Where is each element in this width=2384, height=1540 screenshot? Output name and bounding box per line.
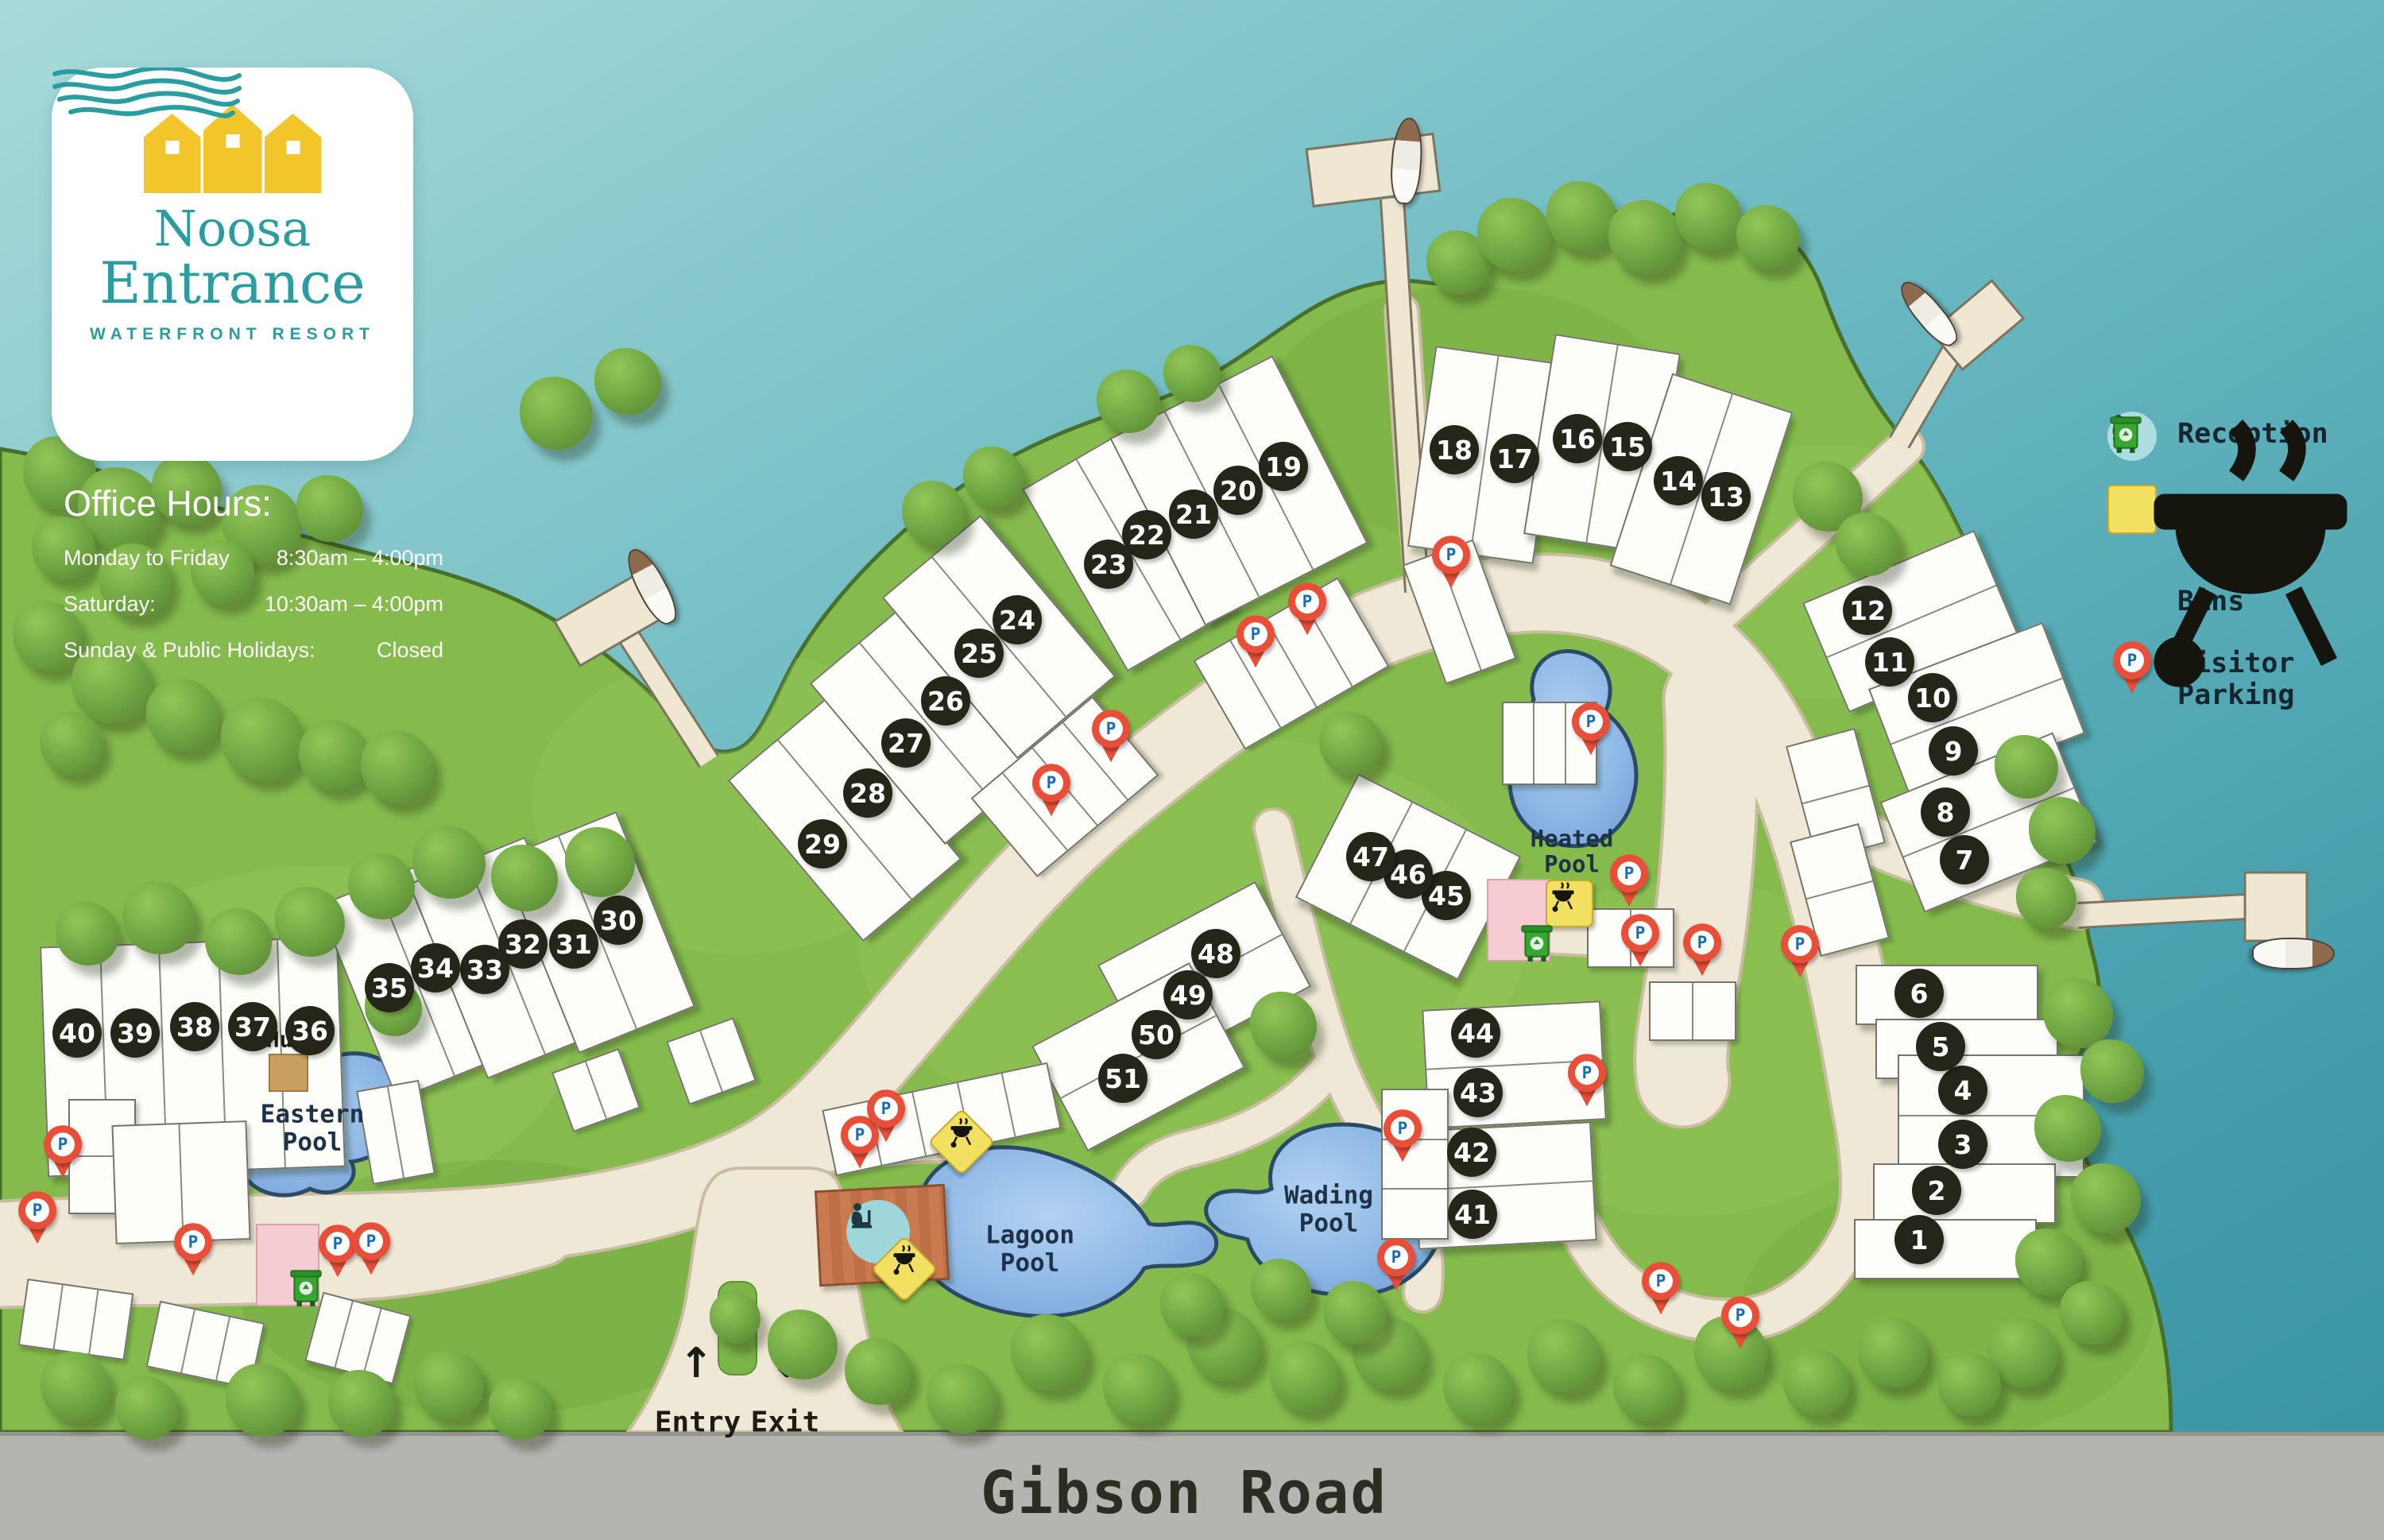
tree-icon bbox=[275, 887, 345, 957]
tree-icon bbox=[41, 1352, 110, 1422]
lot-bay bbox=[1856, 1221, 2035, 1278]
pool-label: Lagoon Pool bbox=[985, 1221, 1074, 1276]
site-badge-21: 21 bbox=[1169, 489, 1218, 539]
visitor-parking-pin: P bbox=[1683, 923, 1721, 979]
site-badge-38: 38 bbox=[170, 1002, 219, 1051]
visitor-parking-pin: P bbox=[1572, 702, 1610, 758]
site-badge-33: 33 bbox=[460, 945, 509, 994]
pin-head: P bbox=[44, 1125, 82, 1163]
site-badge-41: 41 bbox=[1448, 1190, 1497, 1239]
logo-house-icon bbox=[144, 114, 201, 193]
logo-house-icon bbox=[265, 114, 322, 193]
tree-icon bbox=[489, 1376, 552, 1440]
site-badge-49: 49 bbox=[1163, 970, 1213, 1020]
site-badge-16: 16 bbox=[1553, 414, 1602, 463]
parking-icon: P bbox=[2107, 641, 2157, 697]
pin-letter: P bbox=[874, 1097, 898, 1120]
tree-icon bbox=[1675, 183, 1742, 250]
pin-head: P bbox=[1377, 1238, 1415, 1276]
visitor-parking-pin: P bbox=[867, 1089, 905, 1145]
pin-letter: P bbox=[1575, 1061, 1599, 1085]
office-hours-time: Closed bbox=[377, 638, 443, 663]
logo-subtitle: Entrance bbox=[99, 253, 366, 314]
site-badge-11: 11 bbox=[1865, 637, 1914, 687]
site-badge-18: 18 bbox=[1430, 425, 1479, 474]
lot-bay bbox=[1875, 1165, 2054, 1222]
visitor-parking-pin: P bbox=[1237, 615, 1275, 671]
tree-icon bbox=[1163, 345, 1221, 402]
site-badge-17: 17 bbox=[1490, 434, 1539, 483]
site-badge-43: 43 bbox=[1453, 1068, 1503, 1117]
lot-bay bbox=[1504, 703, 1533, 784]
visitor-parking-pin: P bbox=[1092, 710, 1130, 765]
pool-label: Wading Pool bbox=[1284, 1182, 1373, 1236]
site-badge-13: 13 bbox=[1701, 472, 1751, 521]
tree-icon bbox=[768, 1310, 838, 1379]
entry-arrow-icon: ↑ bbox=[679, 1340, 714, 1387]
site-badge-39: 39 bbox=[110, 1008, 160, 1058]
pin-letter: P bbox=[2120, 648, 2144, 672]
site-badge-47: 47 bbox=[1346, 832, 1395, 881]
pin-letter: P bbox=[1628, 921, 1652, 945]
visitor-parking-pin: P bbox=[44, 1125, 82, 1181]
site-badge-8: 8 bbox=[1921, 787, 1970, 837]
logo-tagline: WATERFRONT RESORT bbox=[90, 325, 375, 344]
accommodation-lot bbox=[1856, 965, 2038, 1025]
tree-icon bbox=[226, 1364, 299, 1437]
bbq-icon bbox=[2107, 485, 2157, 534]
site-badge-24: 24 bbox=[993, 595, 1042, 644]
site-badge-3: 3 bbox=[1938, 1120, 1987, 1169]
tree-icon bbox=[902, 481, 966, 544]
pin-head: P bbox=[1568, 1054, 1606, 1092]
boat-icon bbox=[2252, 938, 2335, 969]
pin-head: P bbox=[1288, 582, 1326, 621]
lot-bay bbox=[1692, 983, 1735, 1039]
pin-head: P bbox=[1237, 615, 1275, 653]
pin-letter: P bbox=[1295, 590, 1319, 613]
office-hours-row: Saturday:10:30am – 4:00pm bbox=[64, 592, 443, 617]
site-badge-28: 28 bbox=[843, 768, 892, 818]
office-hours-day: Monday to Friday bbox=[64, 546, 230, 571]
tree-icon bbox=[1160, 1273, 1224, 1337]
tree-icon bbox=[414, 1349, 484, 1419]
tree-icon bbox=[122, 881, 195, 954]
tree-icon bbox=[1011, 1314, 1087, 1391]
visitor-parking-pin: P bbox=[1621, 914, 1659, 969]
tree-icon bbox=[205, 908, 272, 975]
pin-letter: P bbox=[359, 1229, 383, 1253]
map-legend: ReceptionUndercover bbqBinsPVisitor Park… bbox=[2107, 412, 2384, 735]
visitor-parking-pin: P bbox=[1568, 1054, 1606, 1109]
visitor-parking-pin: P bbox=[18, 1191, 56, 1247]
pin-letter: P bbox=[1384, 1245, 1408, 1269]
tree-icon bbox=[40, 711, 103, 775]
tree-icon bbox=[1251, 1259, 1311, 1319]
office-hours-rows: Monday to Friday8:30am – 4:00pmSaturday:… bbox=[64, 546, 443, 663]
visitor-parking-pin: P bbox=[319, 1225, 357, 1280]
site-badge-30: 30 bbox=[594, 896, 643, 945]
visitor-parking-pin: P bbox=[352, 1222, 390, 1278]
parking-icon: P bbox=[2113, 641, 2151, 697]
visitor-parking-pin: P bbox=[1384, 1109, 1422, 1165]
site-badge-12: 12 bbox=[1843, 586, 1892, 635]
tree-icon bbox=[2029, 797, 2096, 864]
tree-icon bbox=[2071, 1163, 2141, 1233]
pin-head: P bbox=[18, 1191, 56, 1229]
site-badge-51: 51 bbox=[1098, 1054, 1147, 1103]
site-badge-15: 15 bbox=[1603, 422, 1652, 471]
pin-letter: P bbox=[1617, 861, 1641, 885]
logo-title: Noosa bbox=[154, 204, 312, 253]
exit-label: Exit bbox=[751, 1407, 820, 1439]
site-badge-19: 19 bbox=[1259, 442, 1308, 491]
site-badge-9: 9 bbox=[1929, 726, 1978, 776]
site-badge-25: 25 bbox=[954, 629, 1004, 678]
site-badge-27: 27 bbox=[881, 718, 931, 768]
site-badge-14: 14 bbox=[1654, 456, 1703, 505]
tree-icon bbox=[2016, 868, 2076, 928]
tree-icon bbox=[1995, 735, 2058, 799]
tree-icon bbox=[963, 447, 1024, 507]
tree-icon bbox=[845, 1338, 911, 1405]
pin-letter: P bbox=[1244, 622, 1267, 646]
visitor-parking-pin: P bbox=[1032, 764, 1070, 819]
pin-letter: P bbox=[1788, 932, 1812, 956]
pin-head: P bbox=[1092, 710, 1130, 748]
tree-icon bbox=[594, 348, 661, 415]
pin-head: P bbox=[1683, 923, 1721, 962]
pool-label: Eastern Pool bbox=[261, 1101, 365, 1155]
pin-head: P bbox=[1721, 1296, 1759, 1334]
pin-letter: P bbox=[1728, 1303, 1752, 1327]
tree-icon bbox=[1270, 1341, 1340, 1411]
pin-head: P bbox=[319, 1225, 357, 1263]
tree-icon bbox=[361, 730, 434, 803]
site-badge-34: 34 bbox=[411, 943, 460, 992]
office-hours-row: Sunday & Public Holidays:Closed bbox=[64, 638, 443, 663]
tree-icon bbox=[927, 1364, 997, 1434]
pin-head: P bbox=[1572, 702, 1610, 741]
tree-icon bbox=[1250, 992, 1317, 1058]
site-badge-36: 36 bbox=[285, 1006, 335, 1055]
visitor-parking-pin: P bbox=[1721, 1296, 1759, 1352]
pin-letter: P bbox=[1690, 931, 1714, 954]
logo-waves-icon bbox=[52, 68, 242, 118]
site-badge-2: 2 bbox=[1912, 1166, 1961, 1215]
hut-building bbox=[269, 1054, 308, 1092]
site-badge-20: 20 bbox=[1213, 466, 1263, 515]
lot-bay bbox=[1857, 966, 2037, 1023]
site-badge-10: 10 bbox=[1908, 673, 1957, 722]
tree-icon bbox=[56, 902, 119, 965]
visitor-parking-pin: P bbox=[1432, 536, 1470, 591]
tree-icon bbox=[710, 1292, 760, 1343]
site-badge-48: 48 bbox=[1191, 929, 1240, 978]
office-hours-day: Saturday: bbox=[64, 592, 156, 617]
site-badge-35: 35 bbox=[365, 963, 414, 1012]
pin-head: P bbox=[1432, 536, 1470, 574]
tree-icon bbox=[1836, 513, 1899, 576]
tree-icon bbox=[1736, 205, 1800, 269]
tree-icon bbox=[299, 720, 369, 790]
tree-icon bbox=[1319, 711, 1383, 775]
office-hours-panel: Office Hours: Monday to Friday8:30am – 4… bbox=[64, 483, 443, 663]
lot-bay bbox=[1383, 1188, 1447, 1238]
site-badge-1: 1 bbox=[1894, 1215, 1944, 1264]
office-hours-title: Office Hours: bbox=[64, 483, 443, 524]
pin-head: P bbox=[1781, 925, 1819, 963]
accommodation-lot bbox=[1854, 1219, 2037, 1279]
tree-icon bbox=[2043, 978, 2113, 1048]
site-badge-29: 29 bbox=[798, 819, 847, 869]
pin-letter: P bbox=[1439, 543, 1463, 567]
tree-icon bbox=[1097, 370, 1160, 433]
tree-icon bbox=[1477, 198, 1550, 271]
tree-icon bbox=[412, 826, 486, 899]
pin-letter: P bbox=[51, 1132, 75, 1156]
site-badge-23: 23 bbox=[1084, 540, 1133, 589]
pin-letter: P bbox=[1099, 717, 1123, 741]
site-badge-4: 4 bbox=[1938, 1066, 1987, 1115]
pin-letter: P bbox=[25, 1198, 49, 1222]
tree-icon bbox=[1443, 1352, 1513, 1422]
lot-bay bbox=[1651, 983, 1692, 1039]
office-hours-time: 10:30am – 4:00pm bbox=[265, 592, 443, 617]
office-hours-time: 8:30am – 4:00pm bbox=[277, 546, 443, 571]
site-badge-26: 26 bbox=[921, 676, 970, 726]
pin-head: P bbox=[174, 1223, 212, 1261]
tree-icon bbox=[1783, 1349, 1850, 1416]
accommodation-lot bbox=[1873, 1163, 2056, 1224]
tree-icon bbox=[1858, 1318, 1928, 1387]
pin-letter: P bbox=[1579, 710, 1603, 733]
tree-icon bbox=[1546, 181, 1616, 251]
tree-icon bbox=[491, 845, 558, 911]
pin-head: P bbox=[1642, 1262, 1680, 1300]
tree-icon bbox=[2060, 1281, 2123, 1345]
tree-icon bbox=[1103, 1353, 1173, 1423]
tree-icon bbox=[348, 853, 415, 919]
tree-icon bbox=[1608, 200, 1682, 273]
visitor-parking-pin: P bbox=[1642, 1262, 1680, 1318]
office-hours-row: Monday to Friday8:30am – 4:00pm bbox=[64, 546, 443, 571]
visitor-parking-pin: P bbox=[174, 1223, 212, 1279]
tree-icon bbox=[2034, 1095, 2101, 1162]
entry-label: Entry bbox=[655, 1407, 741, 1439]
pin-letter: P bbox=[1391, 1116, 1415, 1140]
site-badge-6: 6 bbox=[1894, 969, 1944, 1018]
lot-bay bbox=[114, 1124, 183, 1243]
site-badge-50: 50 bbox=[1132, 1010, 1181, 1059]
bbq-icon bbox=[2107, 485, 2157, 534]
pin-head: P bbox=[867, 1089, 905, 1128]
visitor-parking-pin: P bbox=[1377, 1238, 1415, 1294]
pin-letter: P bbox=[326, 1232, 350, 1256]
legend-item-undercover: Undercover bbq bbox=[2107, 485, 2384, 555]
pin-letter: P bbox=[1039, 771, 1063, 795]
pin-head: P bbox=[352, 1222, 390, 1260]
site-badge-7: 7 bbox=[1940, 835, 1989, 884]
site-badge-37: 37 bbox=[228, 1002, 277, 1051]
tree-icon bbox=[1613, 1354, 1680, 1421]
lot-bay bbox=[1533, 703, 1564, 784]
tree-icon bbox=[2080, 1039, 2144, 1103]
tree-icon bbox=[328, 1370, 395, 1437]
gibson-road: Gibson Road bbox=[0, 1432, 2384, 1540]
resort-map-canvas: Gibson Road Hut ↑ ↓ Entry Exit Noosa Ent… bbox=[0, 0, 2384, 1540]
tree-icon bbox=[520, 377, 593, 450]
site-badge-42: 42 bbox=[1447, 1128, 1496, 1177]
resort-logo-card: Noosa Entrance WATERFRONT RESORT bbox=[52, 68, 413, 461]
tree-icon bbox=[115, 1376, 179, 1440]
tree-icon bbox=[1937, 1352, 2001, 1416]
pin-letter: P bbox=[1649, 1269, 1673, 1293]
parking-bay-strip bbox=[17, 1279, 134, 1360]
pin-head: P bbox=[1384, 1109, 1422, 1147]
site-badge-5: 5 bbox=[1916, 1022, 1965, 1071]
pin-head: P bbox=[1610, 854, 1648, 892]
pin-letter: P bbox=[181, 1230, 205, 1254]
tree-icon bbox=[1527, 1319, 1600, 1392]
site-badge-40: 40 bbox=[52, 1008, 102, 1058]
pin-head: P bbox=[2113, 641, 2151, 679]
visitor-parking-pin: P bbox=[1610, 854, 1648, 910]
visitor-parking-pin: P bbox=[1781, 925, 1819, 981]
pin-head: P bbox=[1621, 914, 1659, 952]
site-badge-31: 31 bbox=[549, 919, 598, 969]
visitor-parking-pin: P bbox=[1288, 582, 1326, 638]
pool-label: Heated Pool bbox=[1531, 826, 1614, 878]
tree-icon bbox=[565, 827, 635, 897]
tree-icon bbox=[146, 679, 219, 752]
site-badge-44: 44 bbox=[1451, 1008, 1500, 1058]
road-name: Gibson Road bbox=[981, 1459, 1387, 1527]
parking-bay-strip bbox=[1649, 981, 1736, 1041]
pin-head: P bbox=[1032, 764, 1070, 802]
office-hours-day: Sunday & Public Holidays: bbox=[64, 638, 315, 663]
